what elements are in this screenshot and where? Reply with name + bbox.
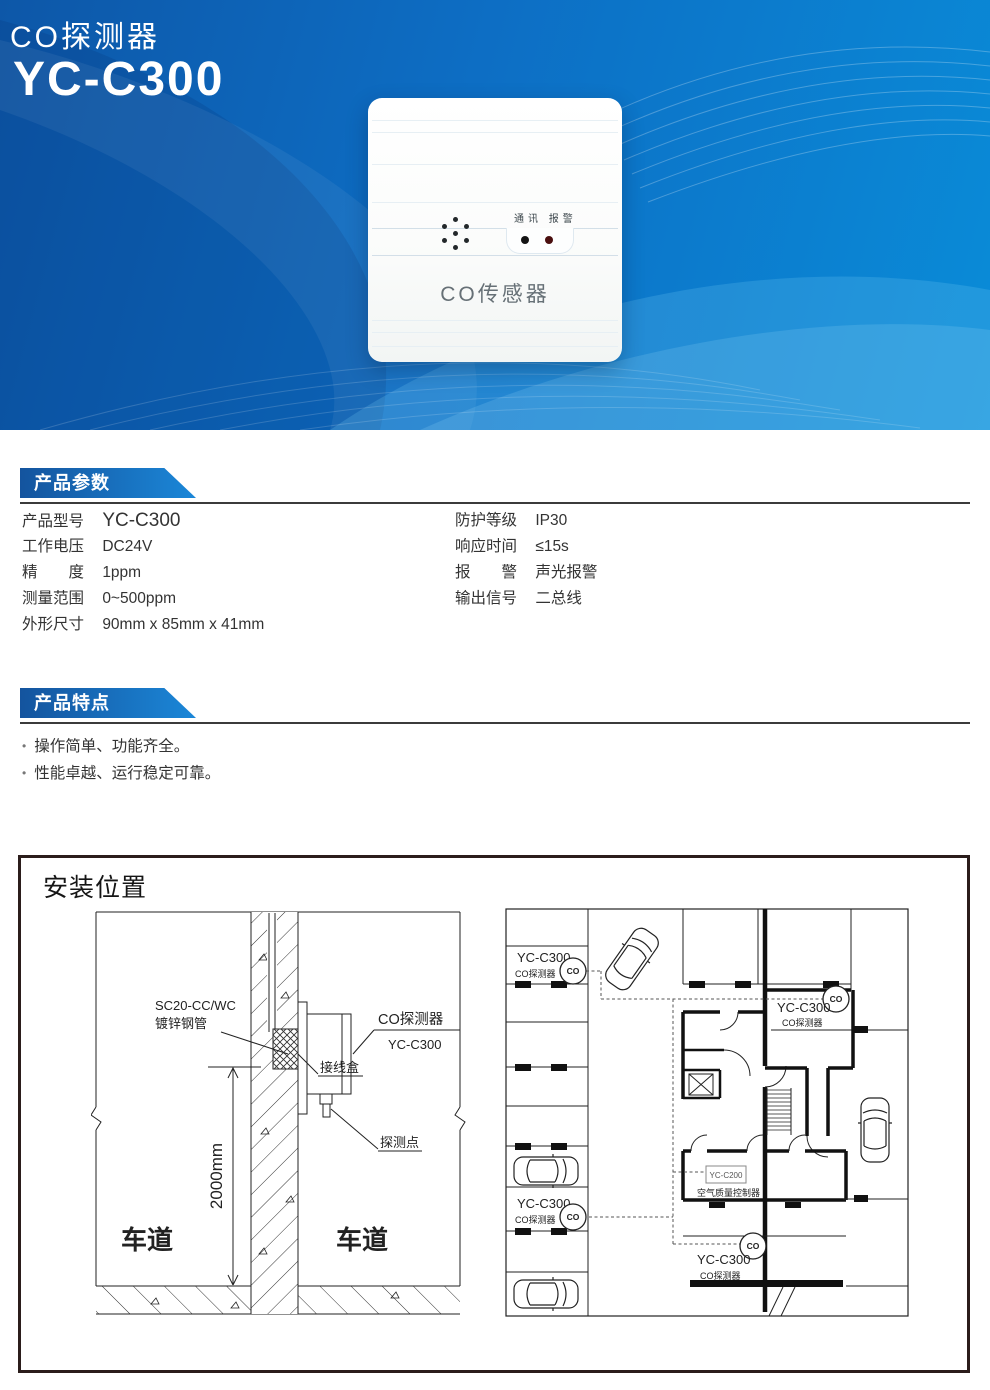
svg-text:CO: CO [830, 994, 843, 1004]
device-seam [372, 202, 618, 203]
banner: CO探测器 YC-C300 通讯 报警 CO传感器 [0, 0, 990, 430]
param-label: 报 警 [455, 560, 531, 586]
param-value: YC-C300 [102, 510, 180, 531]
device-seam [372, 346, 618, 347]
svg-text:镀锌钢管: 镀锌钢管 [155, 1016, 207, 1031]
param-value: IP30 [535, 512, 567, 529]
device-seam [372, 164, 618, 165]
param-row: 测量范围 0~500ppm [22, 586, 264, 612]
param-value: 声光报警 [535, 564, 597, 581]
product-category: CO探测器 [10, 12, 160, 56]
svg-text:接线盒: 接线盒 [320, 1060, 359, 1075]
param-value: 二总线 [535, 590, 582, 607]
junction-box [273, 1029, 300, 1069]
device-photo: 通讯 报警 CO传感器 [368, 98, 622, 362]
detector-label: CO探测器 YC-C300 [353, 1011, 460, 1054]
car-left-2 [514, 1277, 578, 1311]
led-indicators [506, 228, 574, 254]
svg-text:YC-C300: YC-C300 [388, 1037, 441, 1052]
installation-title: 安装位置 [43, 868, 147, 904]
svg-text:CO: CO [567, 966, 580, 976]
param-row: 输出信号 二总线 [455, 586, 597, 612]
device-seam [372, 332, 618, 333]
svg-text:CO: CO [567, 1212, 580, 1222]
svg-text:CO探测器: CO探测器 [378, 1011, 444, 1028]
param-row: 响应时间 ≤15s [455, 534, 597, 560]
param-label: 响应时间 [455, 534, 531, 560]
param-label: 外形尺寸 [22, 612, 98, 638]
bullet-icon: • [22, 766, 26, 780]
feature-item: •操作简单、功能齐全。 [22, 734, 189, 756]
comm-led-icon [521, 236, 529, 244]
led-label: 通讯 报警 [514, 210, 577, 225]
installation-section: 安装位置 [18, 855, 970, 1373]
divider [20, 502, 970, 504]
car-left-1 [514, 1154, 578, 1188]
section-title-params: 产品参数 [20, 468, 196, 498]
params-left-column: 产品型号 YC-C300 工作电压 DC24V 精 度 1ppm 测量范围 0~… [22, 508, 264, 638]
device-front-label: CO传感器 [368, 278, 622, 308]
lane-right-label: 车道 [336, 1225, 388, 1255]
svg-text:YC-C300: YC-C300 [777, 1000, 830, 1015]
param-value: DC24V [102, 538, 152, 555]
device-seam [372, 228, 618, 229]
param-row: 防护等级 IP30 [455, 508, 597, 534]
device-seam [372, 320, 618, 321]
product-model-title: YC-C300 [13, 52, 224, 107]
svg-text:CO探测器: CO探测器 [515, 1214, 556, 1225]
svg-text:探测点: 探测点 [380, 1135, 419, 1150]
param-label: 工作电压 [22, 534, 98, 560]
param-label: 输出信号 [455, 586, 531, 612]
device-seam [372, 255, 618, 256]
svg-text:CO探测器: CO探测器 [515, 968, 556, 979]
height-dimension-label: 2000mm [207, 1143, 226, 1209]
feature-text: 操作简单、功能齐全。 [34, 738, 189, 755]
params-right-column: 防护等级 IP30 响应时间 ≤15s 报 警 声光报警 输出信号 二总线 [455, 508, 597, 612]
param-row: 报 警 声光报警 [455, 560, 597, 586]
param-row: 外形尺寸 90mm x 85mm x 41mm [22, 612, 264, 638]
param-label: 精 度 [22, 560, 98, 586]
param-row: 精 度 1ppm [22, 560, 264, 586]
feature-text: 性能卓越、运行稳定可靠。 [34, 765, 220, 782]
svg-text:YC-C300: YC-C300 [697, 1252, 750, 1267]
param-label: 产品型号 [22, 509, 98, 535]
param-row: 产品型号 YC-C300 [22, 508, 264, 534]
param-label: 防护等级 [455, 508, 531, 534]
garage-floor-plan: YC-C200 空气质量控制器 YC-C300 CO探测器 [501, 902, 921, 1324]
probe-label: 探测点 [331, 1109, 422, 1151]
device-seam [372, 120, 618, 121]
device-seam [372, 132, 618, 133]
car-right [858, 1098, 892, 1162]
svg-text:CO: CO [747, 1241, 760, 1251]
param-value: ≤15s [535, 538, 569, 555]
divider [20, 722, 970, 724]
controller-name-label: 空气质量控制器 [697, 1187, 760, 1198]
param-value: 1ppm [102, 564, 141, 581]
param-row: 工作电压 DC24V [22, 534, 264, 560]
svg-text:SC20-CC/WC: SC20-CC/WC [155, 998, 236, 1013]
bullet-icon: • [22, 739, 26, 753]
svg-text:CO探测器: CO探测器 [700, 1270, 741, 1281]
param-label: 测量范围 [22, 586, 98, 612]
alarm-led-icon [545, 236, 553, 244]
controller-model-label: YC-C200 [710, 1171, 743, 1180]
param-value: 90mm x 85mm x 41mm [102, 616, 264, 633]
conduit [267, 913, 277, 1032]
param-value: 0~500ppm [102, 590, 176, 607]
lane-left-label: 车道 [121, 1225, 173, 1255]
section-title-features: 产品特点 [20, 688, 196, 718]
wall-mounting-diagram: 2000mm SC20-CC/WC 镀锌钢管 CO探测器 YC-C300 接线盒… [91, 902, 481, 1324]
probe [320, 1094, 332, 1104]
feature-item: •性能卓越、运行稳定可靠。 [22, 761, 220, 783]
svg-text:CO探测器: CO探测器 [782, 1017, 823, 1028]
